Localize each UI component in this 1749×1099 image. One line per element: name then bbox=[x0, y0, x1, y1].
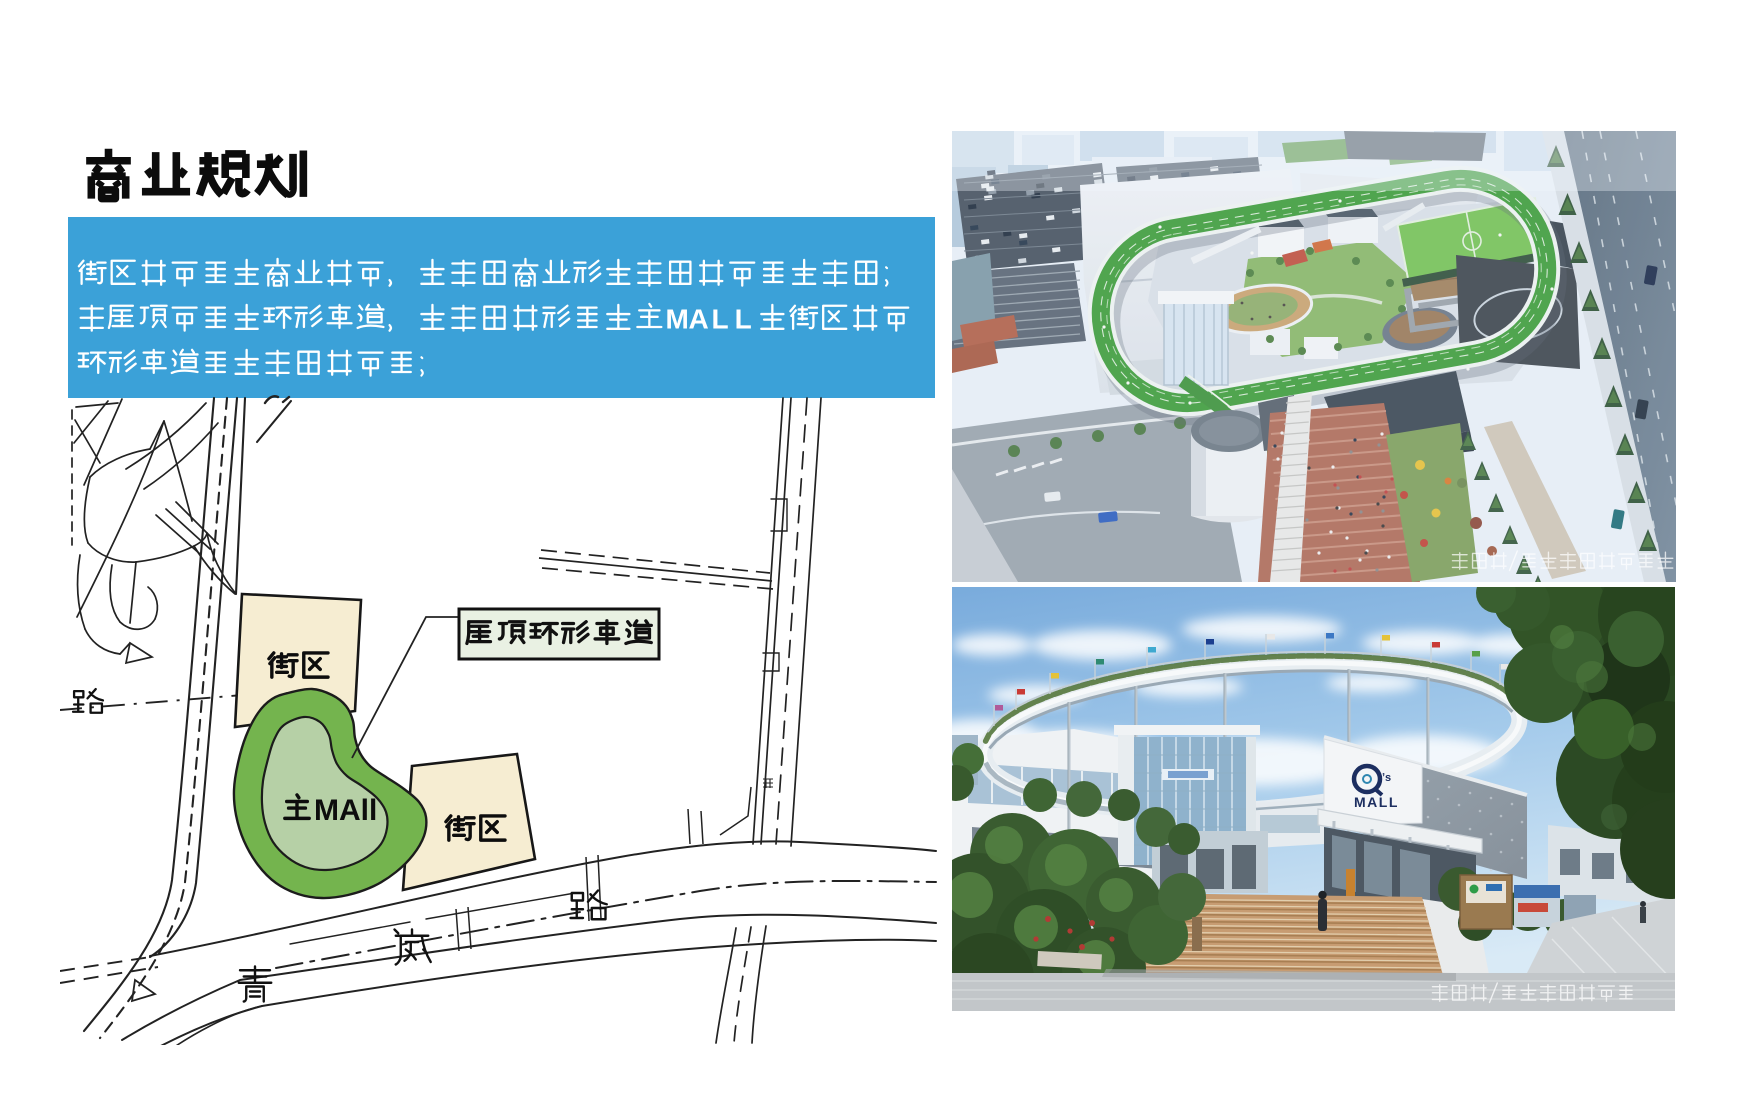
svg-text:MAll: MAll bbox=[314, 794, 377, 827]
svg-text:A: A bbox=[689, 303, 709, 334]
svg-text:M: M bbox=[666, 303, 689, 334]
svg-text:L: L bbox=[735, 303, 752, 334]
svg-text:ʼs: ʼs bbox=[1382, 772, 1391, 784]
svg-text:L: L bbox=[712, 303, 729, 334]
svg-text:MALL: MALL bbox=[1354, 794, 1399, 810]
